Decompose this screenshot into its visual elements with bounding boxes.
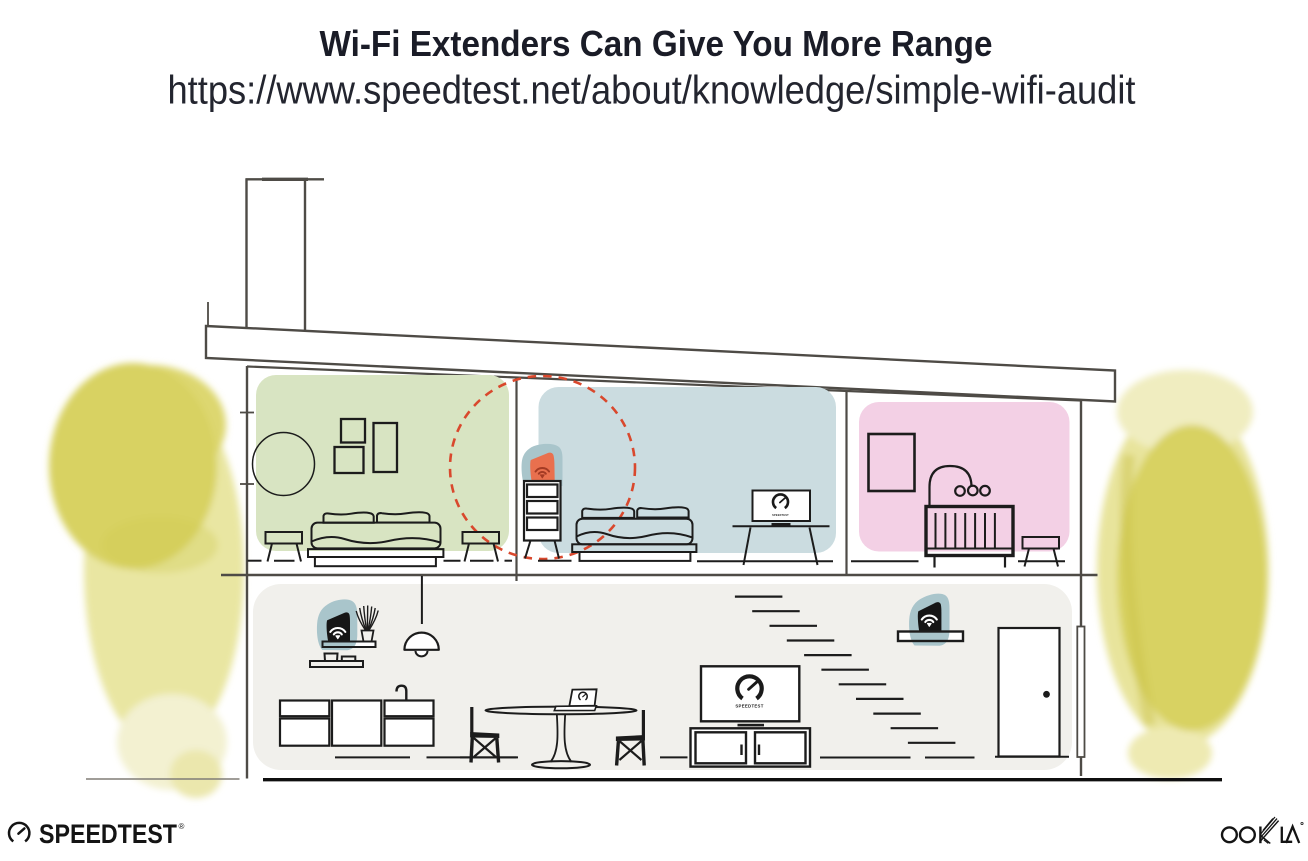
svg-text:Wi-Fi Extenders Can Give You M: Wi-Fi Extenders Can Give You More Range <box>320 23 993 64</box>
svg-text:SPEEDTEST: SPEEDTEST <box>735 704 763 709</box>
svg-text:https://www.speedtest.net/abou: https://www.speedtest.net/about/knowledg… <box>168 69 1136 113</box>
svg-text:®: ® <box>179 822 185 831</box>
svg-text:SPEEDTEST: SPEEDTEST <box>772 514 789 517</box>
svg-text:SPEEDTEST: SPEEDTEST <box>39 819 177 849</box>
